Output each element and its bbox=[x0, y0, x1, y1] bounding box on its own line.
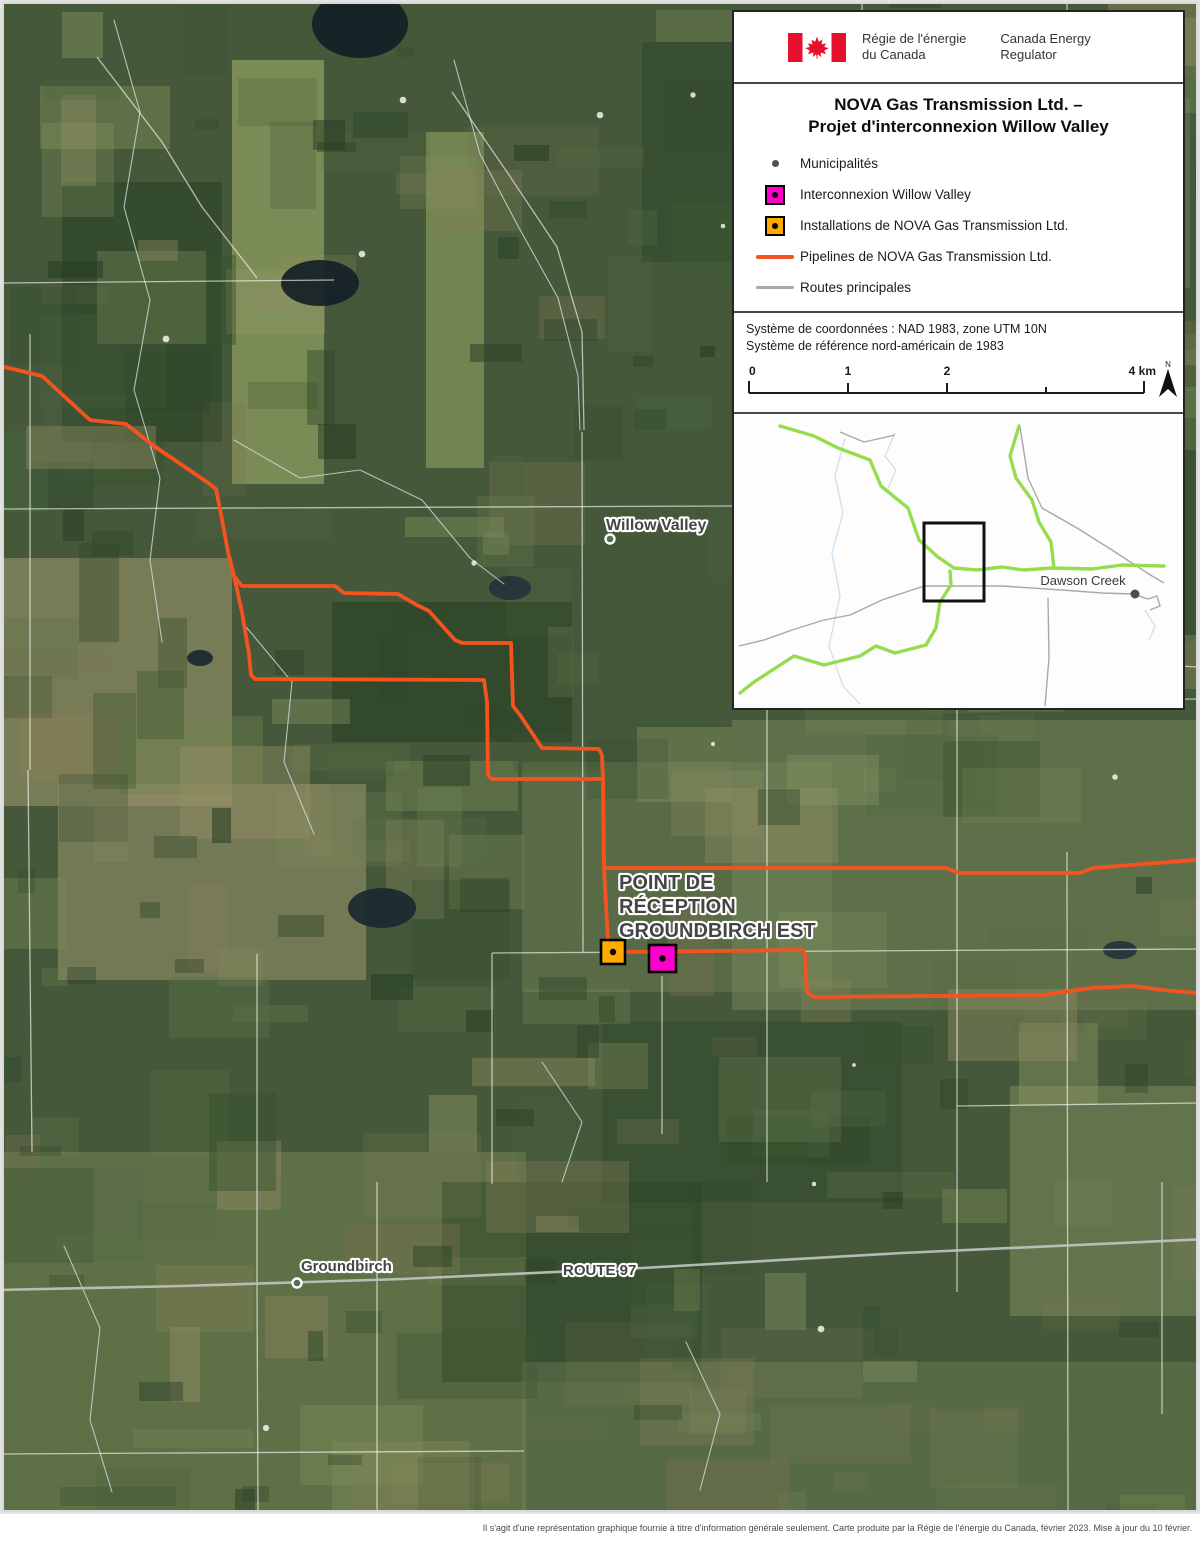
legend-label: Installations de NOVA Gas Transmission L… bbox=[800, 218, 1068, 233]
north-label: N bbox=[1165, 360, 1171, 369]
agency-fr-line2: du Canada bbox=[862, 47, 966, 63]
canada-flag-icon bbox=[788, 33, 846, 62]
north-arrow-icon: N bbox=[1159, 360, 1177, 397]
installation-square-icon bbox=[750, 216, 800, 236]
dawson-creek-dot bbox=[1131, 589, 1140, 598]
legend-item-roads: Routes principales bbox=[750, 272, 1183, 303]
coordinate-scale-section: Système de coordonnées : NAD 1983, zone … bbox=[734, 311, 1183, 412]
legend-item-interconnection: Interconnexion Willow Valley bbox=[750, 179, 1183, 210]
agency-names: Régie de l'énergie du Canada Canada Ener… bbox=[862, 31, 1091, 62]
legend-item-pipelines: Pipelines de NOVA Gas Transmission Ltd. bbox=[750, 241, 1183, 272]
map-label: POINT DE bbox=[619, 872, 713, 894]
interconnection-square-icon bbox=[750, 185, 800, 205]
pipeline-line-icon bbox=[750, 255, 800, 259]
legend-label: Pipelines de NOVA Gas Transmission Ltd. bbox=[800, 249, 1052, 264]
interconnection-marker bbox=[649, 945, 676, 972]
agency-header: Régie de l'énergie du Canada Canada Ener… bbox=[734, 12, 1183, 82]
scale-tick-1: 1 bbox=[845, 364, 852, 378]
disclaimer-text: Il s'agit d'une représentation graphique… bbox=[483, 1523, 1192, 1533]
scale-tick-4km: 4 km bbox=[1129, 364, 1156, 378]
agency-name-fr: Régie de l'énergie du Canada bbox=[862, 31, 966, 62]
map-title-line1: NOVA Gas Transmission Ltd. – bbox=[738, 94, 1179, 116]
coordinate-system-line1: Système de coordonnées : NAD 1983, zone … bbox=[746, 321, 1173, 338]
legend: Municipalités Interconnexion Willow Vall… bbox=[734, 144, 1183, 303]
agency-en-line1: Canada Energy bbox=[1000, 31, 1090, 47]
road-line-icon bbox=[750, 286, 800, 289]
map-label: Willow Valley bbox=[606, 517, 706, 534]
legend-item-municipalities: Municipalités bbox=[750, 148, 1183, 179]
scale-bar: 0 1 2 4 km N bbox=[746, 357, 1179, 403]
legend-label: Routes principales bbox=[800, 280, 911, 295]
map-label: GROUNDBIRCH EST bbox=[619, 920, 816, 942]
title-legend-section: NOVA Gas Transmission Ltd. – Projet d'in… bbox=[734, 82, 1183, 311]
map-label: ROUTE 97 bbox=[563, 1262, 636, 1279]
map-label: RÉCEPTION bbox=[619, 895, 736, 918]
installation-marker bbox=[601, 940, 625, 964]
scale-tick-0: 0 bbox=[749, 364, 756, 378]
agency-en-line2: Regulator bbox=[1000, 47, 1090, 63]
map-title: NOVA Gas Transmission Ltd. – Projet d'in… bbox=[734, 84, 1183, 144]
inset-locator-map: Dawson Creek bbox=[734, 412, 1183, 708]
legend-item-installations: Installations de NOVA Gas Transmission L… bbox=[750, 210, 1183, 241]
legend-label: Interconnexion Willow Valley bbox=[800, 187, 971, 202]
map-info-panel: Régie de l'énergie du Canada Canada Ener… bbox=[732, 10, 1185, 710]
legend-label: Municipalités bbox=[800, 156, 878, 171]
inset-map-canvas: Dawson Creek bbox=[734, 414, 1183, 708]
agency-fr-line1: Régie de l'énergie bbox=[862, 31, 966, 47]
scale-tick-2: 2 bbox=[944, 364, 951, 378]
coordinate-system-line2: Système de référence nord-américain de 1… bbox=[746, 338, 1173, 355]
page: { "colors":{ "pipeline":"#f4531f", "inte… bbox=[0, 0, 1200, 1542]
municipality-dot-icon bbox=[750, 160, 800, 167]
disclaimer-footer: Il s'agit d'une représentation graphique… bbox=[0, 1514, 1200, 1542]
dawson-creek-label: Dawson Creek bbox=[1040, 573, 1126, 588]
map-title-line2: Projet d'interconnexion Willow Valley bbox=[738, 116, 1179, 138]
map-label: Groundbirch bbox=[301, 1258, 392, 1275]
agency-name-en: Canada Energy Regulator bbox=[1000, 31, 1090, 62]
